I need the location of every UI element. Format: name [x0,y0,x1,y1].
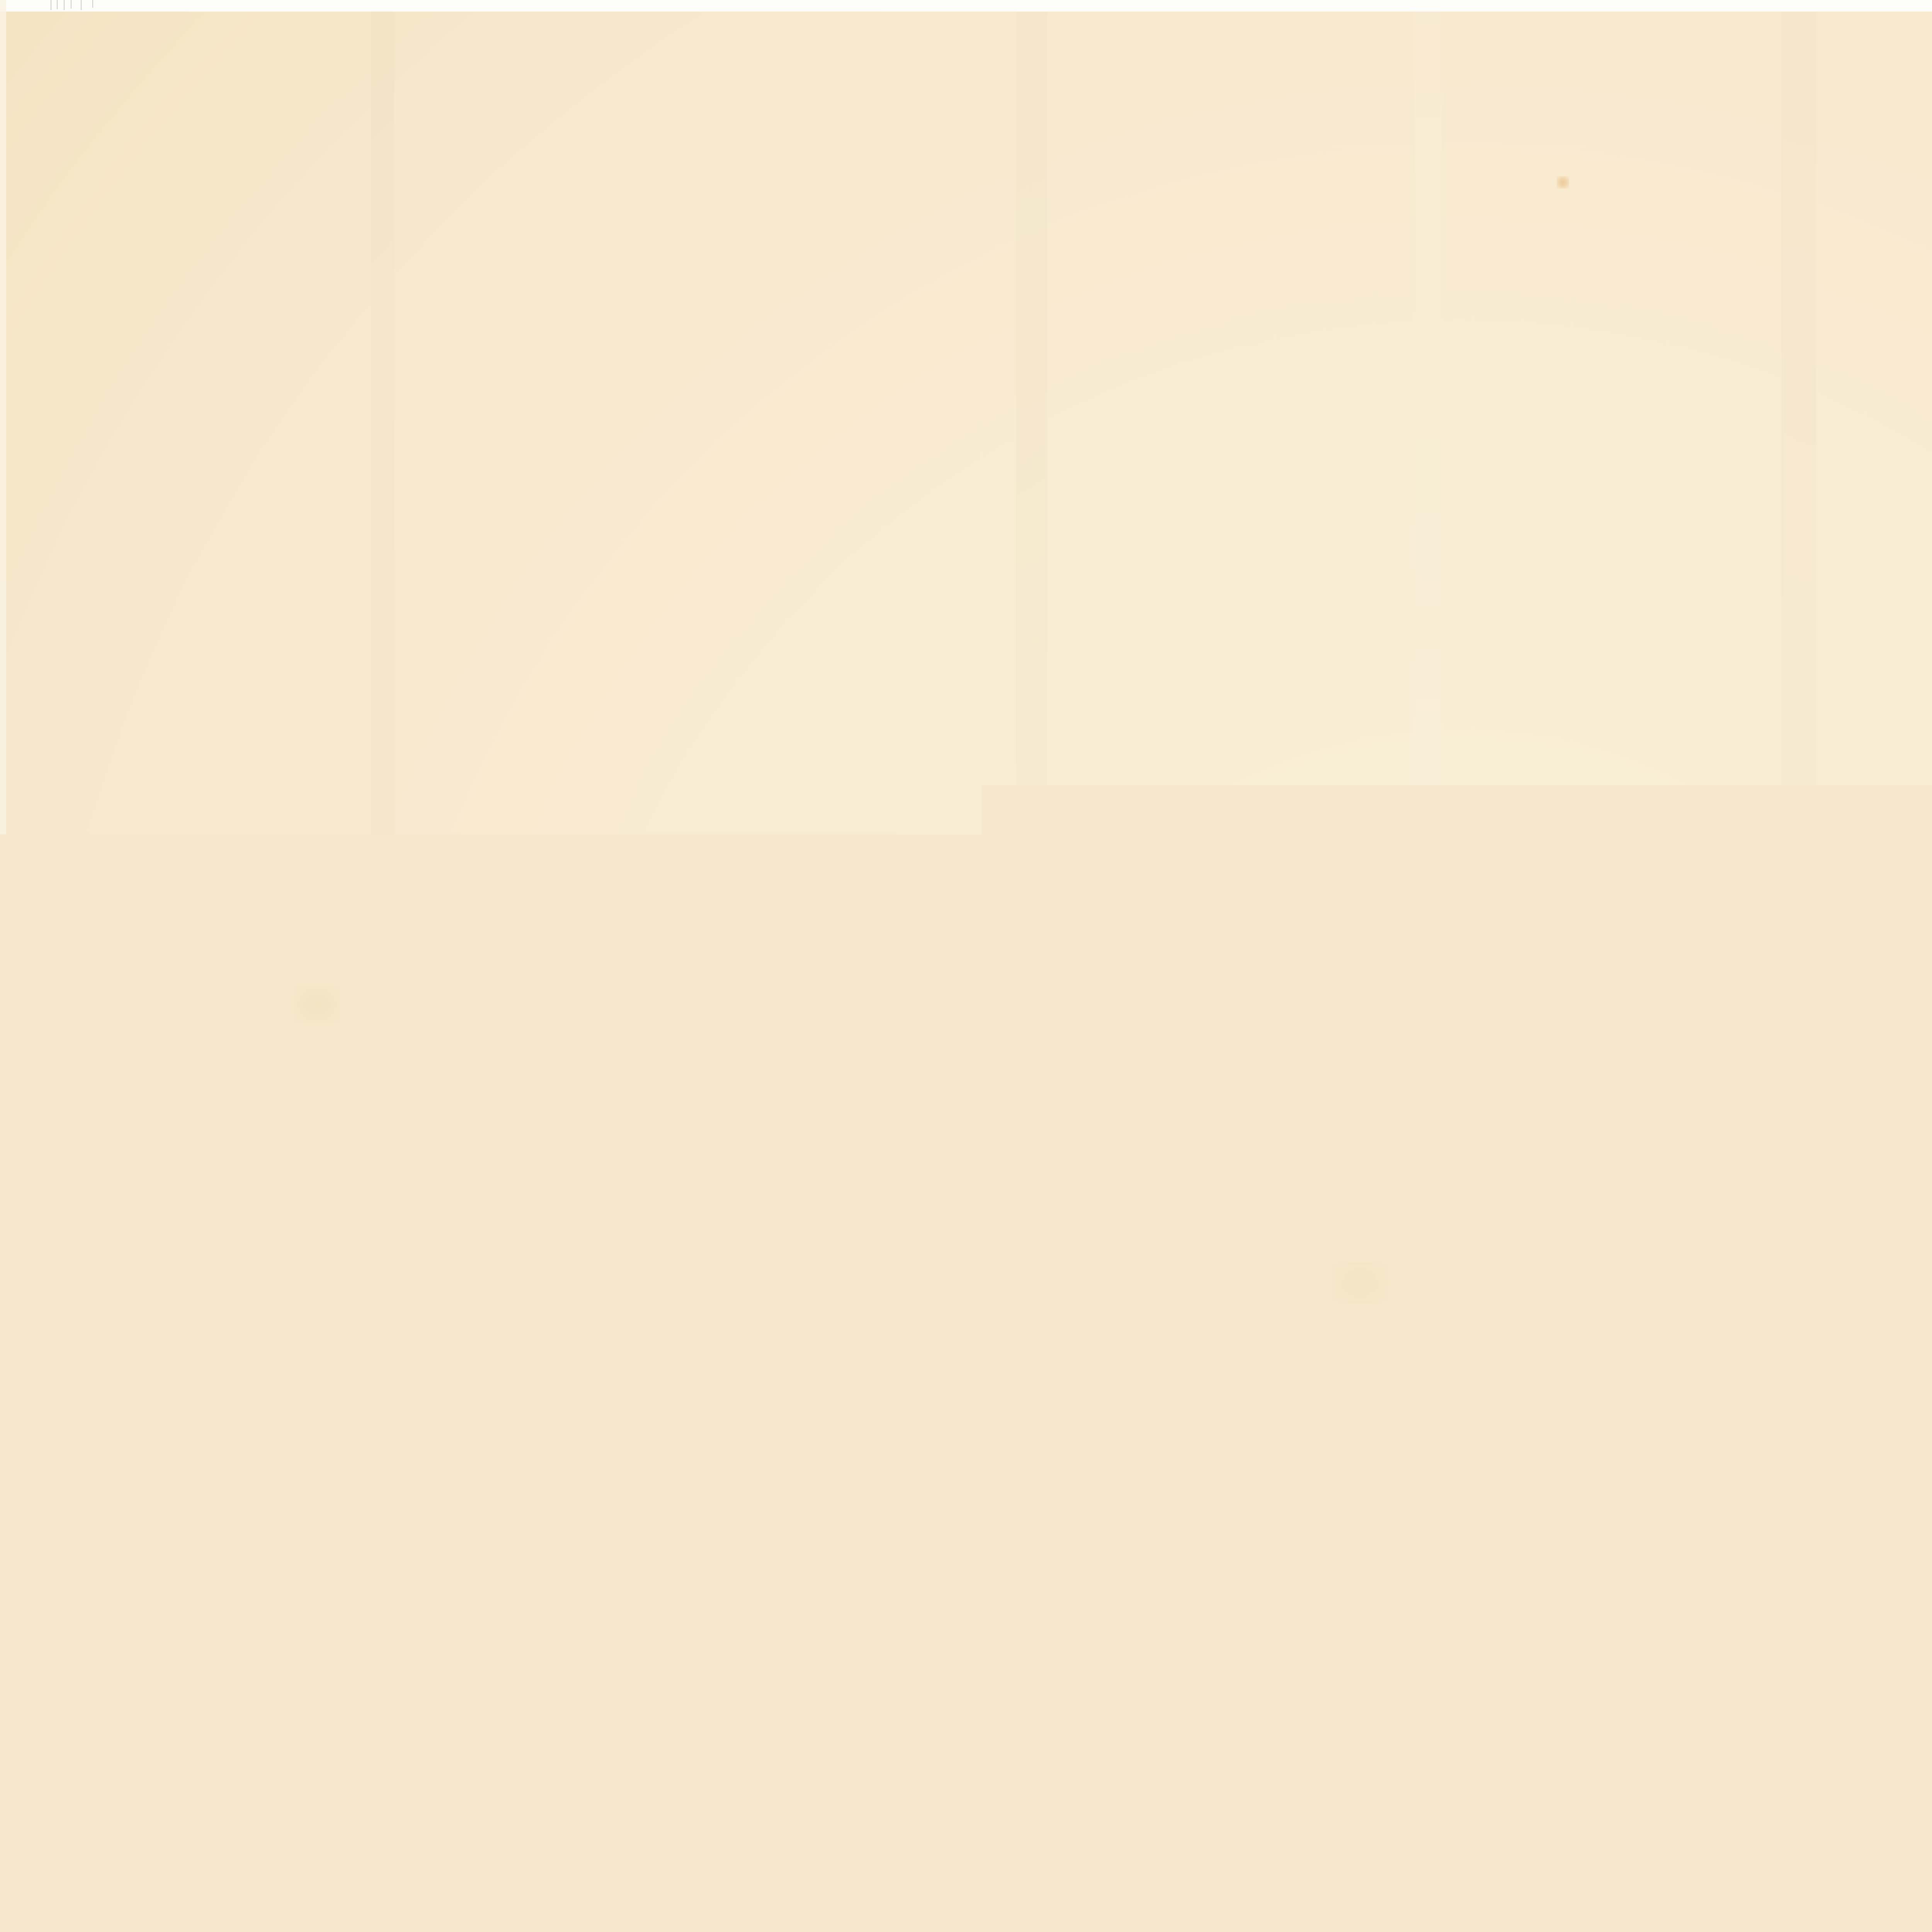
elevation-label: 77,8' [234,1725,263,1738]
compass-north-letter: N [1547,126,1570,154]
map-shape [371,0,394,1932]
map-shape [1558,177,1568,187]
map-shape [1337,1265,1383,1300]
map-shape [298,989,336,1020]
map-canvas: S N 32. [0,0,1932,1932]
paper-background [0,0,1932,1932]
map-shape [1414,0,1441,1932]
compass-south-letter: S [1501,128,1517,156]
map-shape [1016,0,1047,1932]
map-shape [0,0,6,1932]
sheet-number: 32. [1501,185,1536,212]
map-shape [0,0,1932,12]
scanned-map-sheet: S N 32. [0,0,1932,1932]
map-shape [1781,0,1816,1932]
contour-label: 78 [199,1735,213,1748]
contour-label: 81 [226,1793,240,1806]
